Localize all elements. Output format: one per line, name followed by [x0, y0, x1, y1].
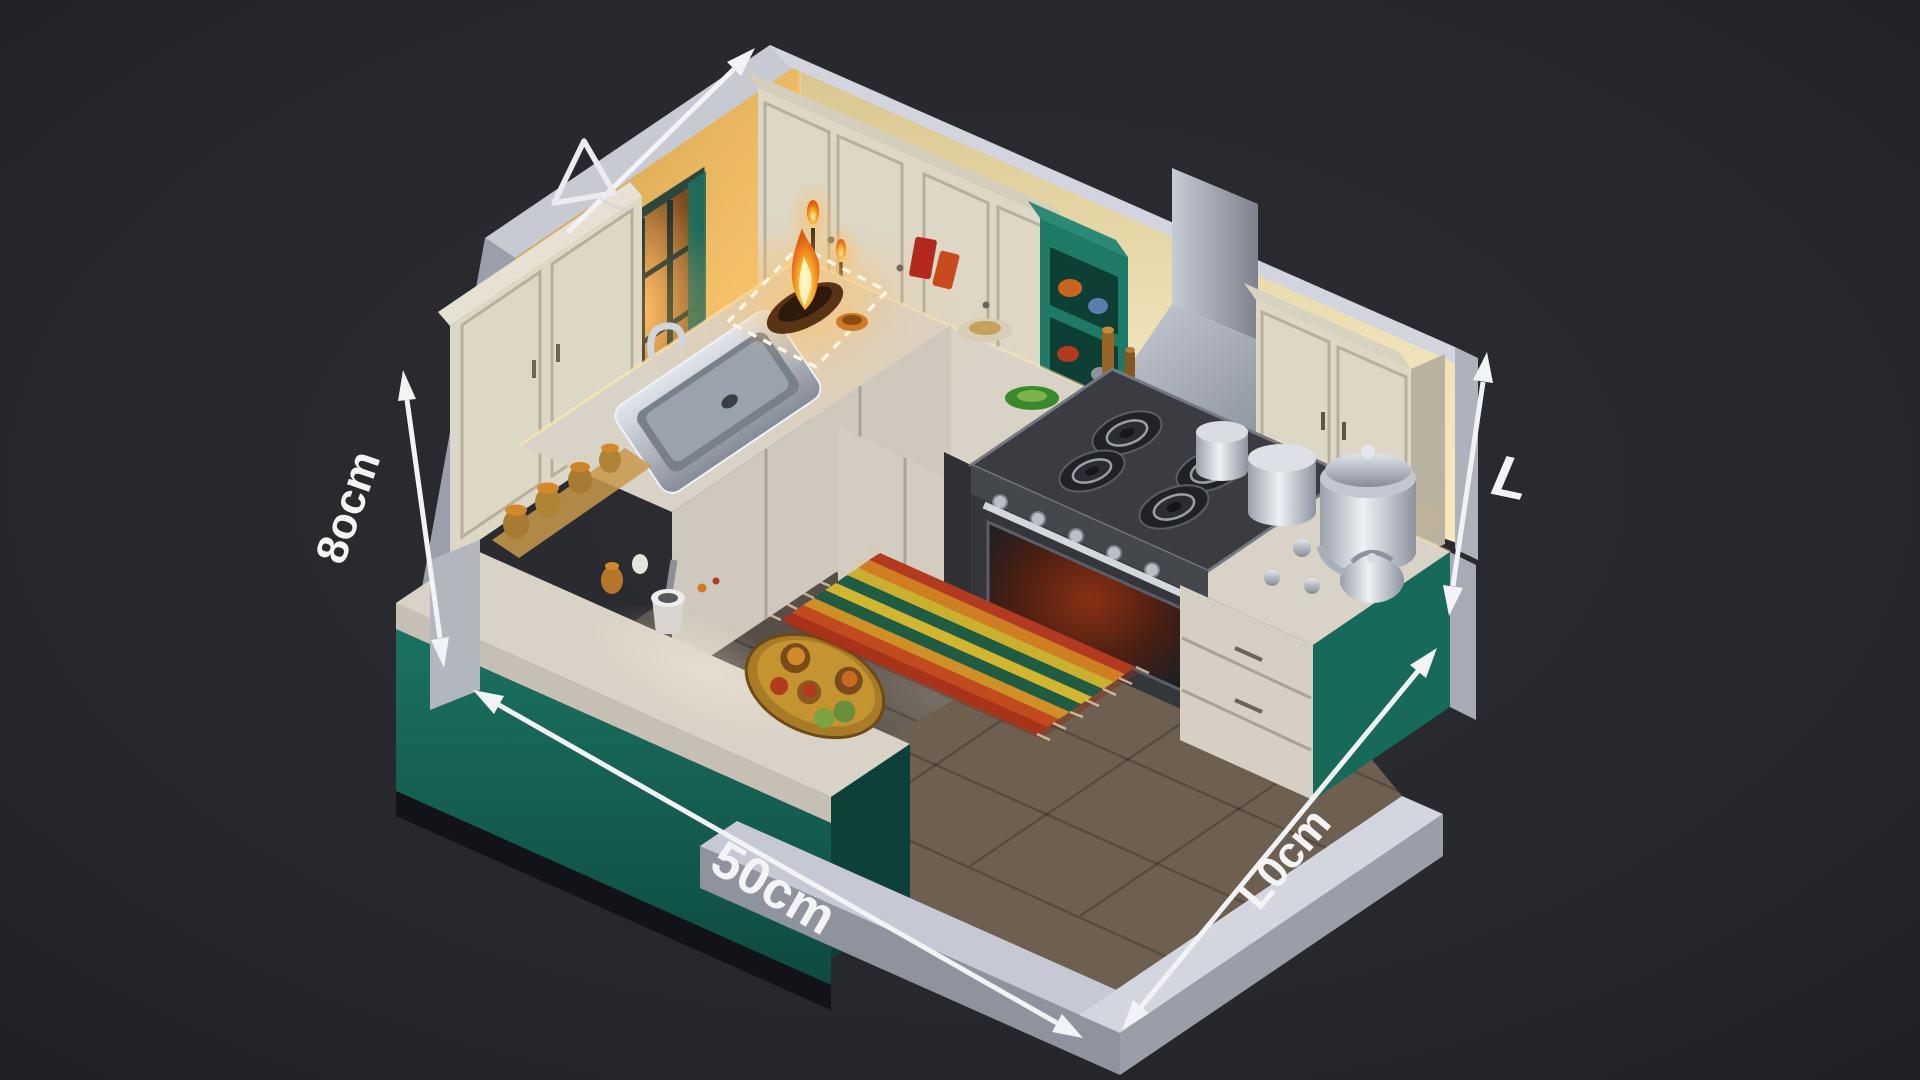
- isometric-kitchen-scene: 8ocm 50cm L0cm L: [0, 0, 1920, 1080]
- shaker: [632, 554, 648, 574]
- flatbread-plate: [969, 321, 1001, 335]
- kitchen-render-canvas: 8ocm 50cm L0cm L: [0, 0, 1920, 1080]
- shelf-pot: [1088, 298, 1108, 314]
- diya-flame-corner: [711, 226, 901, 367]
- shelf-pot: [1058, 279, 1082, 297]
- shelf-pot: [1057, 346, 1079, 362]
